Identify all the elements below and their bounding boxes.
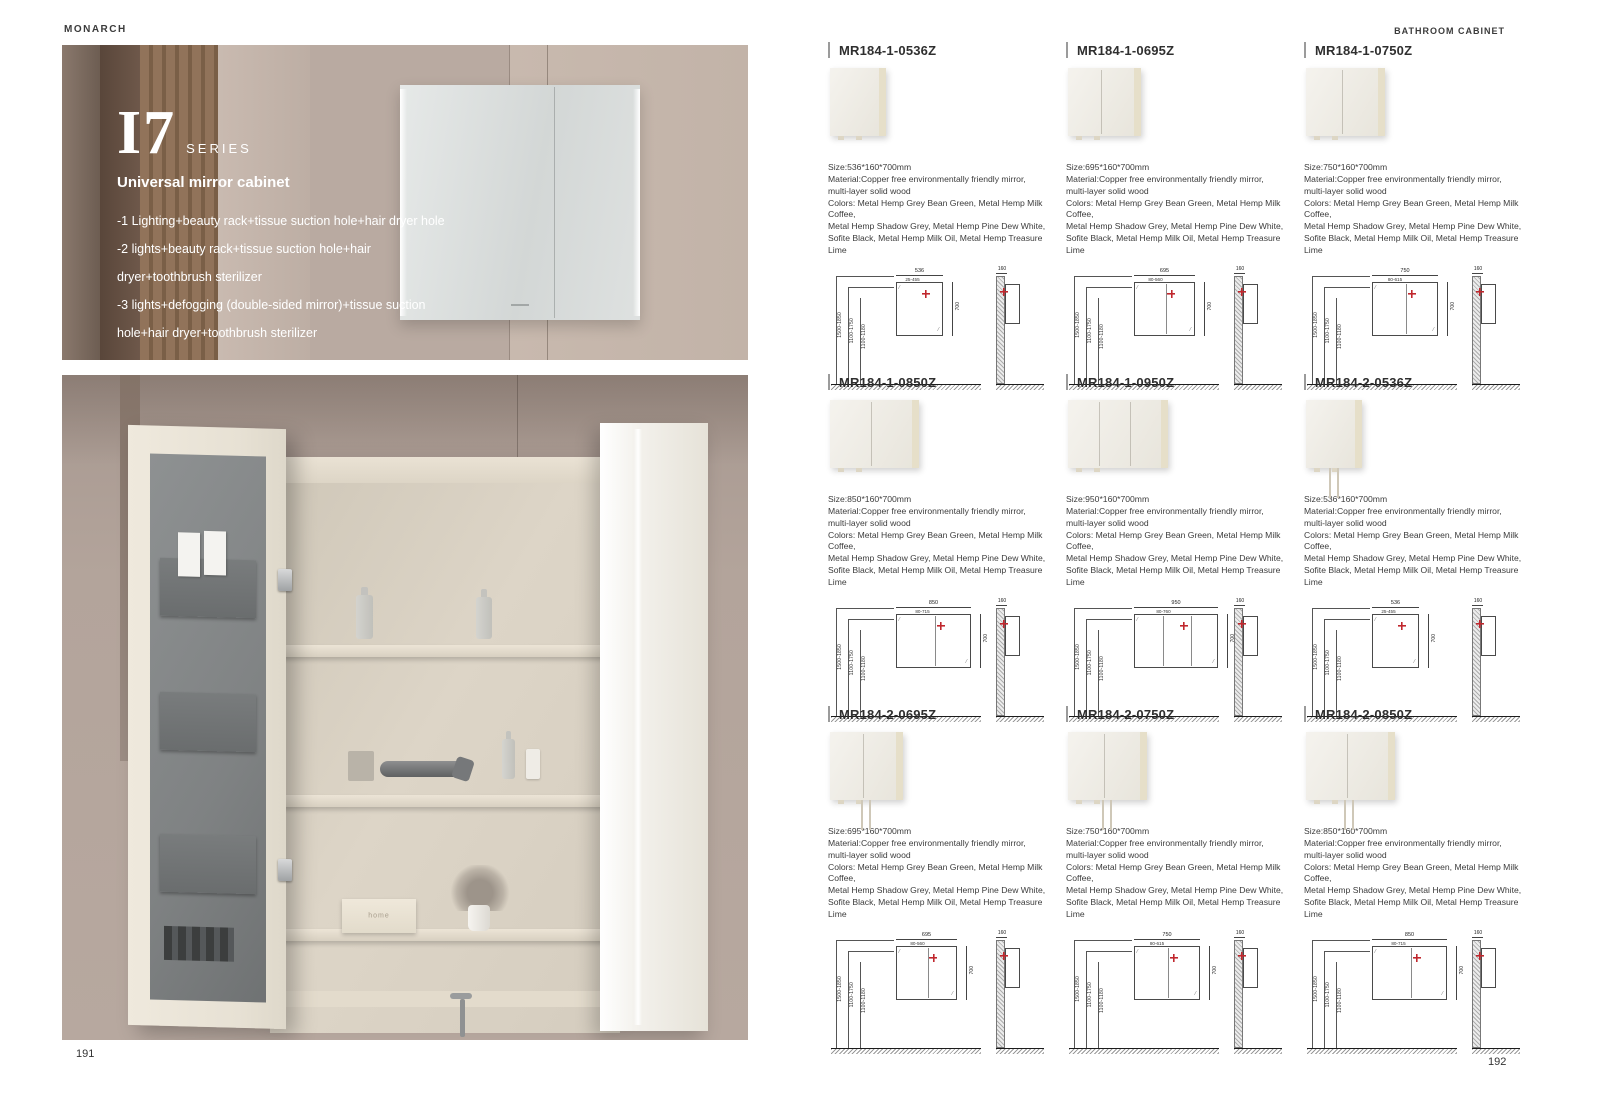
crosshair-mark [1476,952,1484,960]
organizer-pocket [160,834,256,895]
product-description: Size:536*160*700mm Material:Copper free … [828,162,1047,257]
product-code: MR184-1-0950Z [1066,374,1285,390]
height-dim-line [952,282,953,336]
product-cell: MR184-2-0850Z Size:850*160*700mm Materia… [1304,706,1523,1038]
width-dim-label: 695 [896,932,957,938]
colors-line1: Colors: Metal Hemp Grey Bean Green, Meta… [828,198,1047,222]
cabinet-foot [1314,468,1320,472]
size-line: Size:850*160*700mm [1304,826,1523,838]
wall-line [836,276,894,277]
material-line1: Material:Copper free environmentally fri… [1066,838,1285,850]
product-cell: MR184-1-0750Z Size:750*160*700mm Materia… [1304,42,1523,374]
installation-diagram: 1500-1850 1100-1750 1100-1180 750 80-615… [1066,924,1285,1064]
installation-diagram: 1500-1850 1100-1750 1100-1180 695 80-560… [828,924,1047,1064]
organizer-pocket [160,692,256,753]
mirror-mark: ⁄ [1137,617,1138,623]
diagram-door-split [1168,948,1169,998]
width-dim-label: 750 [1372,268,1438,274]
mirror-mark: ⁄ [899,285,900,291]
mirror-mark: ⁄ [899,617,900,623]
colors-line2: Metal Hemp Shadow Grey, Metal Hemp Pine … [828,221,1047,233]
mount-height-label: 1500-1850 [837,976,843,1002]
diagram-door-split [1166,284,1167,334]
cabinet-front-view: ⁄ ⁄ [896,946,957,1000]
size-line: Size:695*160*700mm [1066,162,1285,174]
product-thumbnail-area [828,390,1047,492]
cabinet-foot [1076,800,1082,804]
catalog-spread: MONARCH BATHROOM CABINET 191 192 I7 SERI… [0,0,1610,1100]
colors-line1: Colors: Metal Hemp Grey Bean Green, Meta… [1066,530,1285,554]
mirror-door-split [554,87,555,318]
material-line2: multi-layer solid wood [1066,518,1285,530]
cabinet-shelf [274,645,616,657]
size-line: Size:850*160*700mm [828,494,1047,506]
mount-height-label: 1100-1180 [861,656,867,681]
colors-line3: Sofite Black, Metal Hemp Milk Oil, Metal… [828,233,1047,257]
product-thumbnail-area [1304,722,1523,824]
brand-logo-text: MONARCH [64,24,127,35]
thumbnail-door-split [871,402,872,466]
depth-dim-line [1472,605,1483,606]
depth-dim-label: 160 [996,266,1008,272]
product-description: Size:750*160*700mm Material:Copper free … [1066,826,1285,921]
crosshair-mark [929,954,937,962]
colors-line2: Metal Hemp Shadow Grey, Metal Hemp Pine … [1304,885,1523,897]
thumbnail-door-split [863,734,864,798]
colors-line3: Sofite Black, Metal Hemp Milk Oil, Metal… [1066,233,1285,257]
series-copy-block: I7 SERIES Universal mirror cabinet -1 Li… [117,107,477,347]
feature-item: -2 lights+beauty rack+tissue suction hol… [117,235,465,291]
cabinet-shelf [274,929,616,941]
bottle [476,597,492,639]
product-description: Size:536*160*700mm Material:Copper free … [1304,494,1523,589]
crosshair-mark [922,290,930,298]
depth-dim-label: 160 [996,598,1008,604]
bottle [356,595,373,639]
height-dim-line [1456,946,1457,1000]
product-thumbnail [830,68,886,136]
wall-line [1074,276,1132,277]
product-thumbnail [1306,68,1385,136]
product-thumbnail-area [1304,58,1523,160]
card-box [178,532,200,577]
wall-line [1312,940,1370,941]
product-code: MR184-1-0850Z [828,374,1047,390]
wall-strip [62,45,100,360]
floor-line [831,1048,981,1054]
wall-line [836,940,894,941]
crosshair-mark [1170,954,1178,962]
cabinet-carcass: home [270,457,620,1007]
height-dim-label: 700 [1207,302,1213,310]
colors-line1: Colors: Metal Hemp Grey Bean Green, Meta… [828,862,1047,886]
crosshair-mark [1476,288,1484,296]
floor-line [1472,1048,1520,1054]
dim-line [848,619,894,620]
mount-height-label: 1100-1180 [1099,656,1105,681]
mount-height-label: 1100-1750 [1325,982,1331,1007]
faucet [460,999,465,1037]
depth-dim-label: 160 [1472,598,1484,604]
cabinet-foot [838,136,844,140]
installation-diagram: 1500-1850 1100-1750 1100-1180 850 80-715… [1304,924,1523,1064]
cabinet-foot [1314,136,1320,140]
product-thumbnail [1068,400,1168,468]
crosshair-mark [1238,288,1246,296]
width-dim-line [1372,939,1447,940]
product-thumbnail [1068,68,1141,136]
height-dim-label: 700 [983,634,989,642]
height-dim-label: 700 [955,302,961,310]
product-code: MR184-2-0536Z [1304,374,1523,390]
width-dim-line [1134,607,1218,608]
depth-dim-label: 160 [1234,930,1246,936]
mount-height-label: 1500-1850 [1313,976,1319,1002]
width-dim-line [1372,607,1419,608]
mount-height-label: 1100-1750 [1325,650,1331,675]
material-line1: Material:Copper free environmentally fri… [1304,506,1523,518]
mirror-face [830,68,879,136]
hero-photo-open-cabinet: home [62,375,748,1040]
product-thumbnail-area [1066,390,1285,492]
dim-line [1324,619,1370,620]
depth-dim-line [1234,937,1245,938]
material-line2: multi-layer solid wood [1304,518,1523,530]
height-dim-line [1428,614,1429,668]
height-dim-line [1447,282,1448,336]
material-line2: multi-layer solid wood [1304,186,1523,198]
depth-dim-line [1234,273,1245,274]
colors-line3: Sofite Black, Metal Hemp Milk Oil, Metal… [1066,897,1285,921]
material-line2: multi-layer solid wood [1066,850,1285,862]
product-cell: MR184-2-0750Z Size:750*160*700mm Materia… [1066,706,1285,1038]
width-dim-label: 536 [896,268,943,274]
cabinet-side [1355,400,1362,468]
colors-line3: Sofite Black, Metal Hemp Milk Oil, Metal… [1066,565,1285,589]
feature-item: -1 Lighting+beauty rack+tissue suction h… [117,207,465,235]
width-dim-label: 850 [896,600,971,606]
colors-line1: Colors: Metal Hemp Grey Bean Green, Meta… [1066,862,1285,886]
product-thumbnail [830,400,919,468]
cabinet-front-view: ⁄ ⁄ [1372,946,1447,1000]
width-dim-line [896,939,957,940]
cabinet-side [1161,400,1168,468]
hair-dryer [380,761,466,777]
product-code: MR184-1-0695Z [1066,42,1285,58]
cabinet-foot [856,136,862,140]
colors-line2: Metal Hemp Shadow Grey, Metal Hemp Pine … [1304,553,1523,565]
cabinet-top-edge [270,457,620,483]
mirror-mark: ⁄ [899,949,900,955]
mount-height-label: 1500-1850 [837,312,843,338]
product-thumbnail [1306,400,1362,468]
height-dim-line [966,946,967,1000]
wall-line [1312,276,1370,277]
colors-line3: Sofite Black, Metal Hemp Milk Oil, Metal… [1304,897,1523,921]
mirror-mark: ⁄ [1442,991,1443,997]
product-description: Size:750*160*700mm Material:Copper free … [1304,162,1523,257]
width-dim-label: 536 [1372,600,1419,606]
colors-line1: Colors: Metal Hemp Grey Bean Green, Meta… [1304,530,1523,554]
colors-line3: Sofite Black, Metal Hemp Milk Oil, Metal… [828,897,1047,921]
bottle-row [164,926,234,962]
height-dim-line [1209,946,1210,1000]
cabinet-front-view: ⁄ ⁄ [896,614,971,668]
product-thumbnail-area [1066,722,1285,824]
mirror-mark: ⁄ [1195,991,1196,997]
colors-line1: Colors: Metal Hemp Grey Bean Green, Meta… [1304,862,1523,886]
height-dim-line [1204,282,1205,336]
mirror-mark: ⁄ [1375,285,1376,291]
material-line1: Material:Copper free environmentally fri… [828,506,1047,518]
cabinet-bottom-edge [270,991,620,1007]
thumbnail-door-split [1130,402,1131,466]
diagram-door-split [1406,284,1407,334]
crosshair-mark [1413,954,1421,962]
cabinet-foot [1332,136,1338,140]
cabinet-foot [856,468,862,472]
depth-dim-label: 160 [1472,266,1484,272]
product-thumbnail [1068,732,1147,800]
material-line2: multi-layer solid wood [828,850,1047,862]
crosshair-mark [937,622,945,630]
mount-height-label: 1500-1850 [1075,312,1081,338]
diagram-door-split [935,616,936,666]
cosmetic-tube [526,749,540,779]
mirror-mark: ⁄ [938,327,939,333]
width-dim-label: 750 [1134,932,1200,938]
crosshair-mark [1167,290,1175,298]
width-dim-label: 850 [1372,932,1447,938]
crosshair-mark [1398,622,1406,630]
product-cell: MR184-1-0950Z Size:950*160*700mm Materia… [1066,374,1285,706]
mount-height-label: 1100-1750 [849,982,855,1007]
floor-line [1234,1048,1282,1054]
product-description: Size:850*160*700mm Material:Copper free … [828,494,1047,589]
floor-line [1307,1048,1457,1054]
crosshair-mark [1408,290,1416,298]
product-thumbnail [1306,732,1395,800]
product-cell: MR184-1-0536Z Size:536*160*700mm Materia… [828,42,1047,374]
depth-dim-line [1472,273,1483,274]
product-cell: MR184-2-0536Z Size:536*160*700mm Materia… [1304,374,1523,706]
depth-dim-label: 160 [996,930,1008,936]
mount-height-label: 1100-1750 [849,318,855,343]
material-line2: multi-layer solid wood [1066,186,1285,198]
hinge [278,859,292,881]
cabinet-front-view: ⁄ ⁄ [1372,282,1438,336]
crosshair-mark [1180,622,1188,630]
cabinet-front-view: ⁄ ⁄ [896,282,943,336]
height-dim-line [1227,614,1228,668]
cabinet-foot [1094,136,1100,140]
crosshair-mark [1000,952,1008,960]
mount-height-label: 1100-1750 [1087,318,1093,343]
cabinet-shelf [274,795,616,807]
product-thumbnail-area [828,58,1047,160]
material-line1: Material:Copper free environmentally fri… [1304,174,1523,186]
dim-line [1086,619,1132,620]
card-box [204,531,226,576]
cabinet-front-view: ⁄ ⁄ [1134,282,1195,336]
height-dim-line [980,614,981,668]
depth-dim-line [1472,937,1483,938]
mount-height-label: 1100-1750 [849,650,855,675]
height-dim-label: 700 [1212,966,1218,974]
mirror-mark: ⁄ [1213,659,1214,665]
mount-height-label: 1500-1850 [1313,312,1319,338]
material-line2: multi-layer solid wood [828,186,1047,198]
cabinet-front-view: ⁄ ⁄ [1134,614,1218,668]
hinge [278,569,292,591]
product-code: MR184-2-0750Z [1066,706,1285,722]
material-line1: Material:Copper free environmentally fri… [1066,174,1285,186]
colors-line1: Colors: Metal Hemp Grey Bean Green, Meta… [1304,198,1523,222]
depth-dim-line [996,273,1007,274]
mirror-mark: ⁄ [952,991,953,997]
mount-height-label: 1100-1180 [861,324,867,349]
cabinet-foot [1332,800,1338,804]
product-code: MR184-1-0536Z [828,42,1047,58]
cabinet-side [879,68,886,136]
diagram-door-split [1411,948,1412,998]
mount-height-label: 1500-1850 [1075,644,1081,670]
width-dim-label: 950 [1134,600,1218,606]
colors-line3: Sofite Black, Metal Hemp Milk Oil, Metal… [1304,233,1523,257]
cabinet-side [1388,732,1395,800]
colors-line3: Sofite Black, Metal Hemp Milk Oil, Metal… [828,565,1047,589]
material-line2: multi-layer solid wood [1304,850,1523,862]
dim-line [1086,951,1132,952]
material-line2: multi-layer solid wood [828,518,1047,530]
width-dim-line [896,607,971,608]
cup [348,751,374,781]
cabinet-foot [1076,136,1082,140]
mirror-mark: ⁄ [1137,285,1138,291]
mirror-mark: ⁄ [1375,617,1376,623]
thumbnail-door-split [1104,734,1105,798]
width-dim-line [1134,275,1195,276]
mirror-mark: ⁄ [1414,659,1415,665]
mount-height-label: 1100-1750 [1087,982,1093,1007]
floor-line [1069,1048,1219,1054]
cabinet-foot [1094,800,1100,804]
mirror-face [1068,400,1161,468]
height-dim-label: 700 [969,966,975,974]
material-line1: Material:Copper free environmentally fri… [1304,838,1523,850]
mirror-mark: ⁄ [1375,949,1376,955]
mirror-mark: ⁄ [966,659,967,665]
cabinet-side [1140,732,1147,800]
cabinet-foot [1094,468,1100,472]
diffuser-bottle [502,739,515,779]
crosshair-mark [1000,288,1008,296]
mirror-mark: ⁄ [1137,949,1138,955]
dim-line [1324,287,1370,288]
product-cell: MR184-1-0850Z Size:850*160*700mm Materia… [828,374,1047,706]
vase [468,905,490,931]
cabinet-front-view: ⁄ ⁄ [1372,614,1419,668]
crosshair-mark [1476,620,1484,628]
cabinet-foot [838,800,844,804]
depth-dim-line [996,605,1007,606]
mirror-logo-mark [511,304,529,306]
width-dim-line [1372,275,1438,276]
cabinet-interior [270,483,620,1033]
cabinet-front-view: ⁄ ⁄ [1134,946,1200,1000]
colors-line2: Metal Hemp Shadow Grey, Metal Hemp Pine … [828,553,1047,565]
cabinet-door-open-right [600,423,708,1031]
product-code: MR184-2-0850Z [1304,706,1523,722]
depth-dim-label: 160 [1472,930,1484,936]
door-edge-light [634,429,642,1025]
wall-line [1074,608,1132,609]
crosshair-mark [1238,620,1246,628]
series-suffix: SERIES [186,141,252,156]
mount-height-label: 1500-1850 [1313,644,1319,670]
height-dim-label: 700 [1431,634,1437,642]
floor-line [996,1048,1044,1054]
colors-line2: Metal Hemp Shadow Grey, Metal Hemp Pine … [1066,885,1285,897]
colors-line2: Metal Hemp Shadow Grey, Metal Hemp Pine … [828,885,1047,897]
feature-list: -1 Lighting+beauty rack+tissue suction h… [117,207,465,348]
mount-height-label: 1100-1750 [1325,318,1331,343]
depth-dim-line [1234,605,1245,606]
dim-line [848,287,894,288]
thumbnail-door-split [1099,402,1100,466]
mount-height-label: 1100-1180 [1337,988,1343,1013]
product-thumbnail [830,732,903,800]
mirror-edge-light [633,89,640,316]
cabinet-side [912,400,919,468]
mount-height-label: 1500-1850 [837,644,843,670]
home-box-label: home [368,913,390,920]
product-thumbnail-area [1066,58,1285,160]
cabinet-foot [838,468,844,472]
size-line: Size:950*160*700mm [1066,494,1285,506]
mount-height-label: 1100-1180 [1337,656,1343,681]
product-description: Size:695*160*700mm Material:Copper free … [828,826,1047,921]
material-line1: Material:Copper free environmentally fri… [828,174,1047,186]
series-name: I7 [117,107,176,160]
hero-photo-closed-cabinet: I7 SERIES Universal mirror cabinet -1 Li… [62,45,748,360]
cabinet-foot [1076,468,1082,472]
crosshair-mark [1000,620,1008,628]
width-dim-line [896,275,943,276]
dim-line [1324,951,1370,952]
mount-height-label: 1100-1180 [1337,324,1343,349]
mount-height-label: 1100-1180 [861,988,867,1013]
wall-line [1074,940,1132,941]
depth-dim-label: 160 [1234,598,1246,604]
product-code: MR184-1-0750Z [1304,42,1523,58]
dim-line [1086,287,1132,288]
depth-dim-label: 160 [1234,266,1246,272]
product-description: Size:850*160*700mm Material:Copper free … [1304,826,1523,921]
door-organizer-panel [150,454,266,1003]
page-number-left: 191 [76,1048,94,1060]
wall-line [836,608,894,609]
diagram-door-split [928,948,929,998]
thumbnail-door-split [1347,734,1348,798]
mount-height-label: 1500-1850 [1075,976,1081,1002]
colors-line1: Colors: Metal Hemp Grey Bean Green, Meta… [1066,198,1285,222]
height-dim-label: 700 [1459,966,1465,974]
width-dim-label: 695 [1134,268,1195,274]
category-label: BATHROOM CABINET [1394,26,1505,36]
series-subtitle: Universal mirror cabinet [117,174,477,191]
colors-line1: Colors: Metal Hemp Grey Bean Green, Meta… [828,530,1047,554]
